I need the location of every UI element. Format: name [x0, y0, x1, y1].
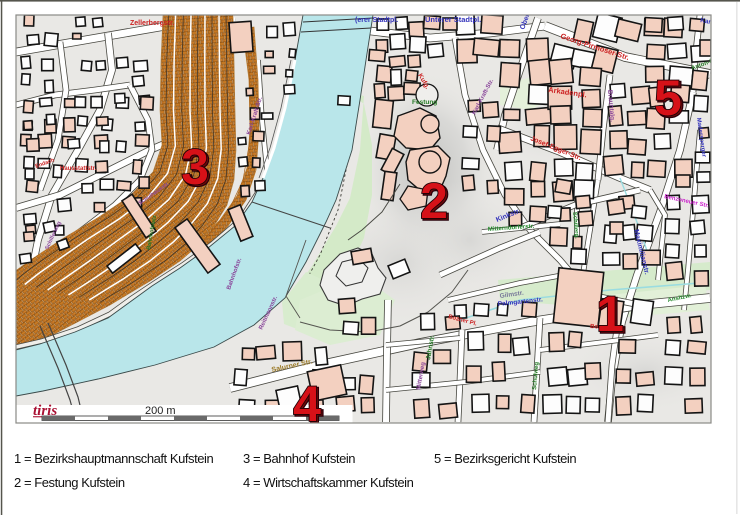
svg-text:1: 1: [596, 286, 624, 342]
svg-text:2 = Festung Kufstein: 2 = Festung Kufstein: [14, 475, 125, 490]
svg-text:Hausstattstr.: Hausstattstr.: [60, 166, 97, 172]
svg-text:5 = Bezirksgericht Kufstein: 5 = Bezirksgericht Kufstein: [434, 451, 576, 466]
svg-text:2: 2: [420, 173, 448, 229]
svg-text:1 = Bezirkshauptmannschaft Kuf: 1 = Bezirkshauptmannschaft Kufstein: [14, 451, 213, 466]
svg-text:Zellerbergstr.: Zellerbergstr.: [130, 20, 174, 27]
svg-text:Festung: Festung: [412, 99, 437, 106]
svg-text:3: 3: [181, 139, 209, 195]
svg-text:4 = Wirtschaftskammer Kufstein: 4 = Wirtschaftskammer Kufstein: [243, 475, 414, 490]
svg-text:Unterer Stadtpl.: Unterer Stadtpl.: [425, 15, 481, 24]
svg-text:(erer Stadtpl.: (erer Stadtpl.: [355, 17, 398, 24]
svg-text:200 m: 200 m: [145, 405, 176, 417]
svg-text:3 = Bahnhof Kufstein: 3 = Bahnhof Kufstein: [243, 451, 355, 466]
svg-text:5: 5: [654, 70, 682, 126]
